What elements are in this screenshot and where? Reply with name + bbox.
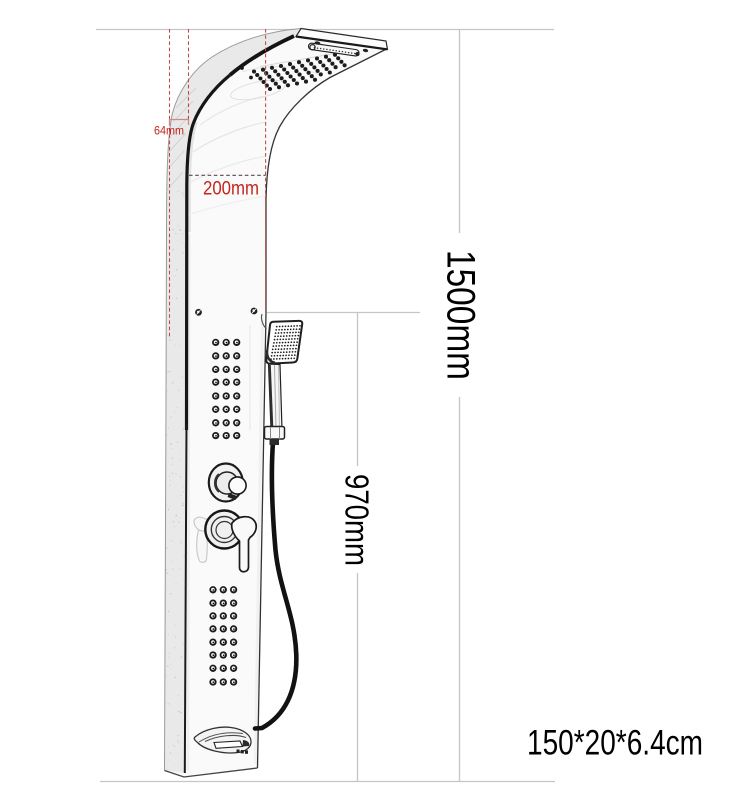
svg-text:200mm: 200mm [203,179,259,200]
svg-text:1500mm: 1500mm [439,250,483,380]
svg-text:64mm: 64mm [154,124,184,138]
svg-text:150*20*6.4cm: 150*20*6.4cm [527,723,703,762]
svg-text:970mm: 970mm [339,474,376,566]
